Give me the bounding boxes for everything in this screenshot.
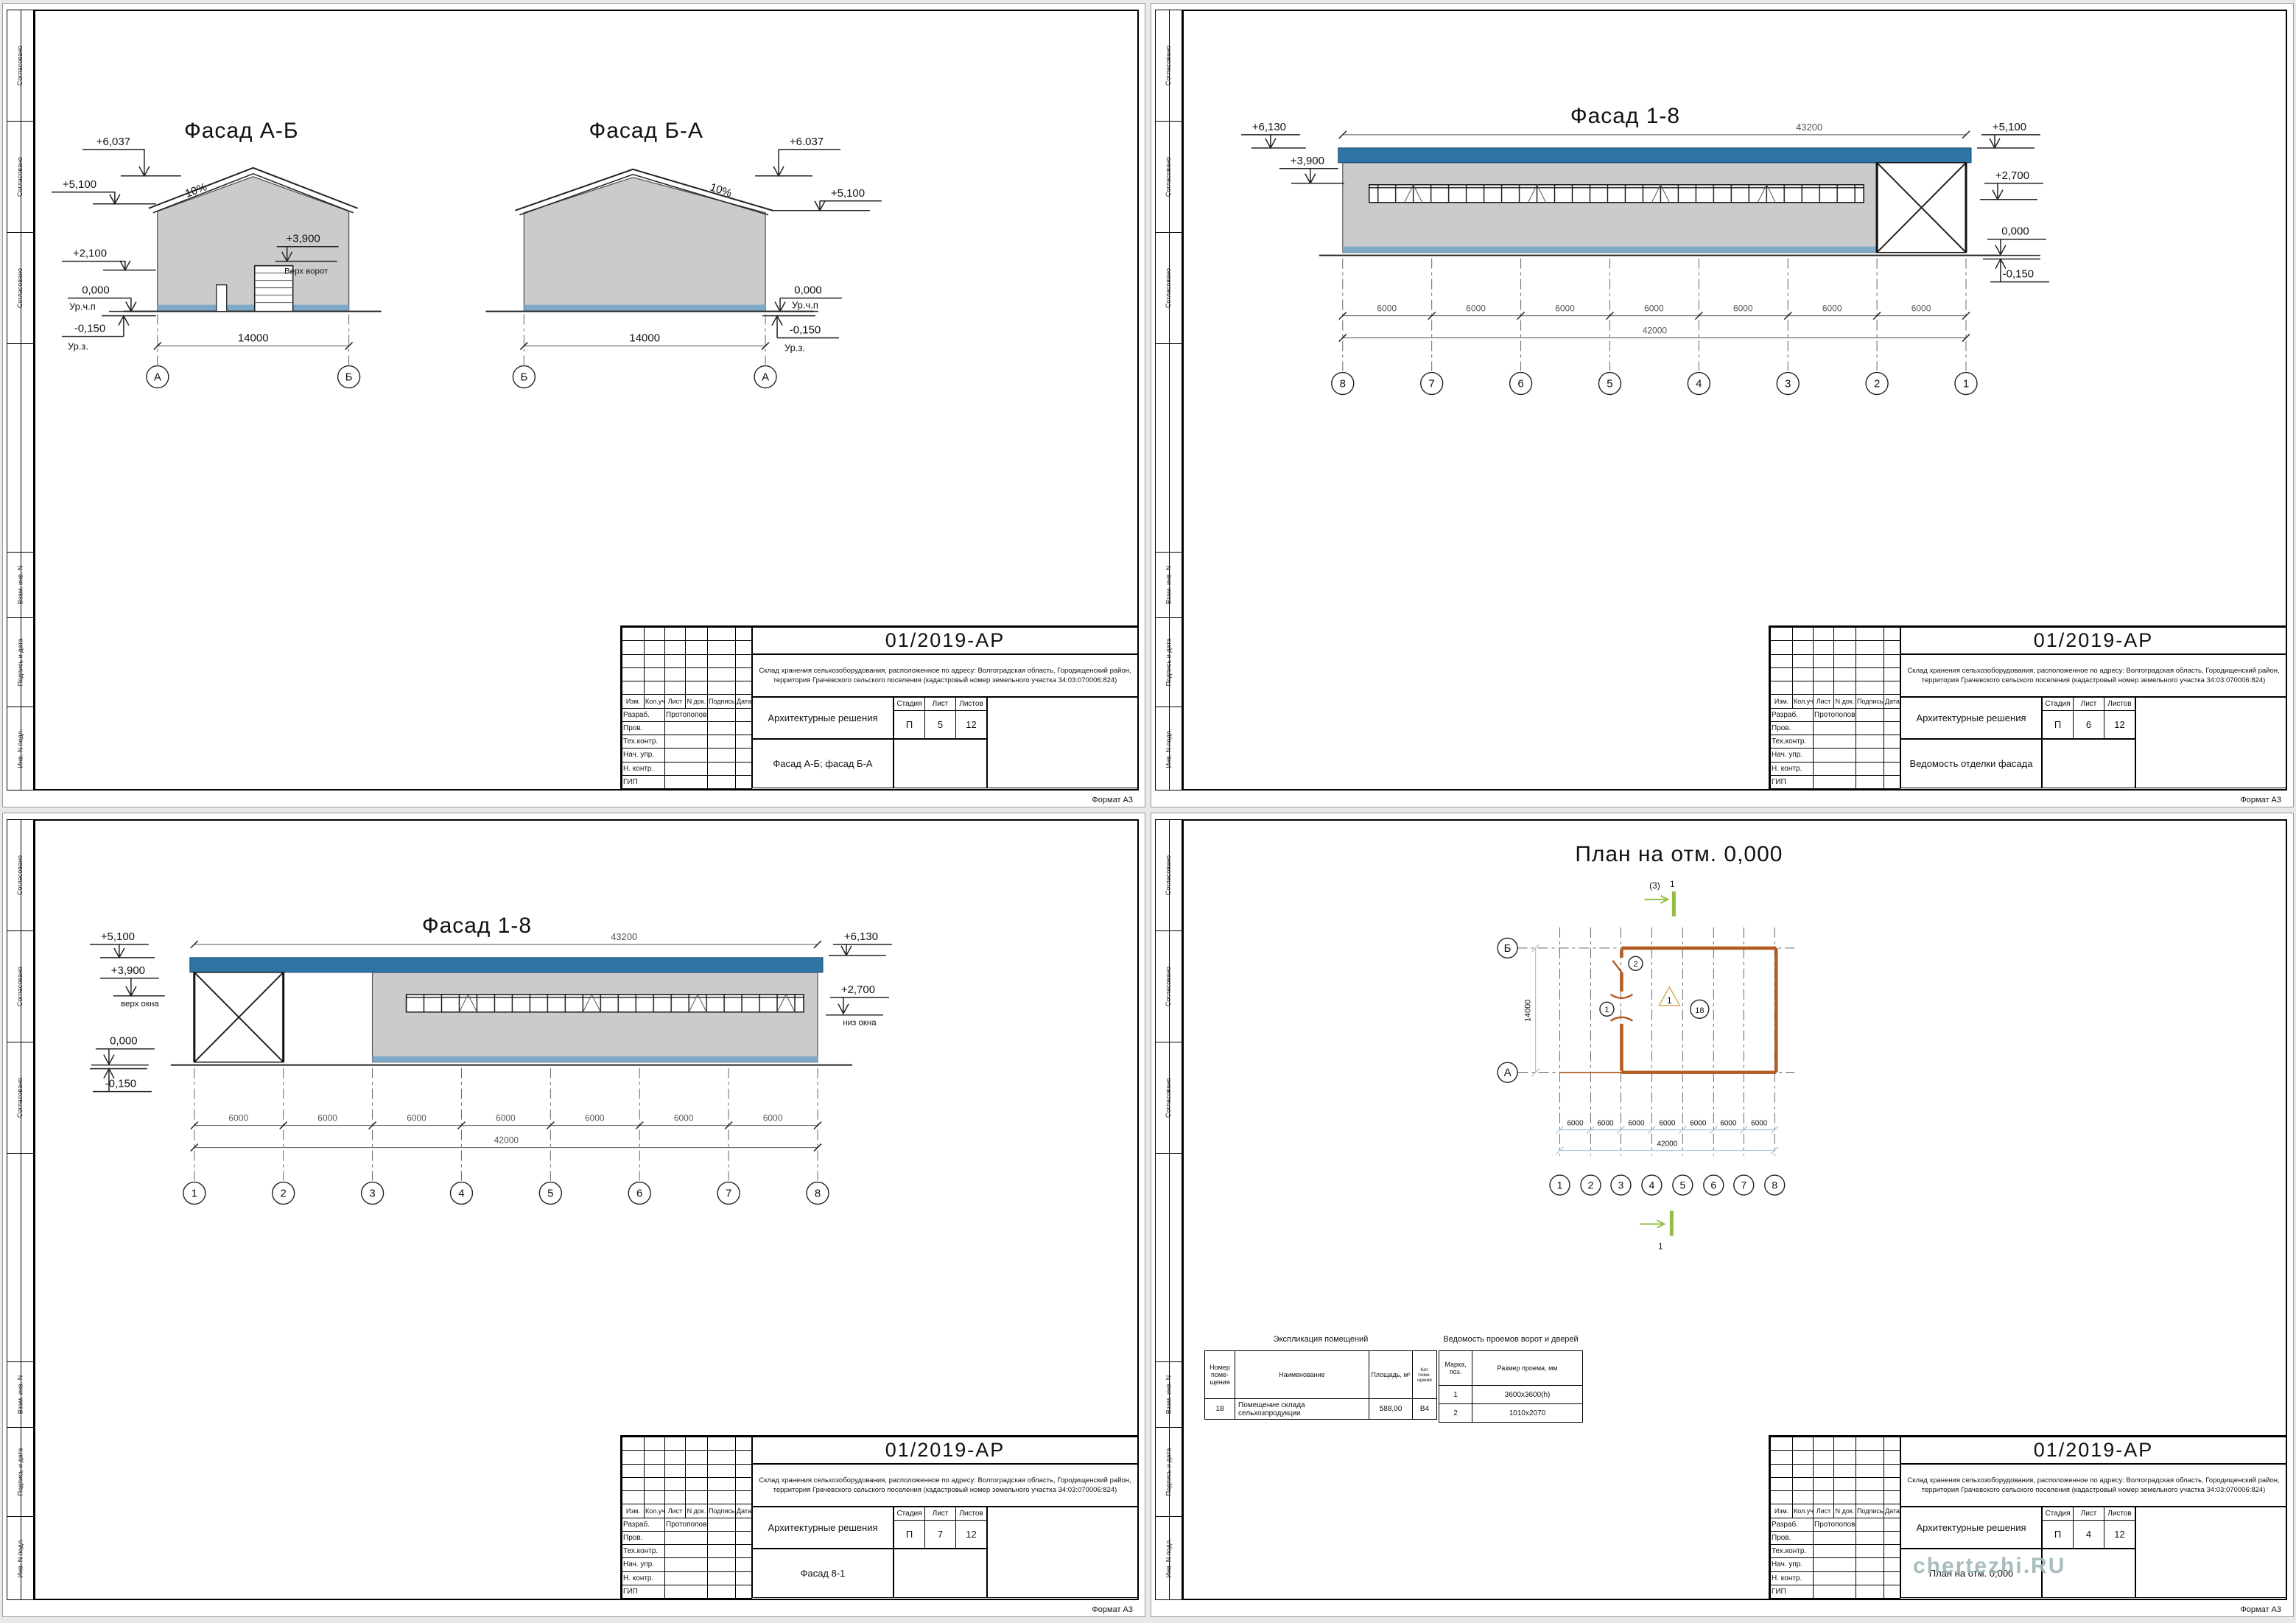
side-box: Согласовано xyxy=(7,930,34,1042)
svg-text:6000: 6000 xyxy=(1628,1120,1645,1128)
stage-sheet-counts: СтадияЛистЛистов П512 xyxy=(894,697,987,739)
svg-text:3: 3 xyxy=(1785,378,1791,390)
room-triangle-tag: 1 xyxy=(1659,987,1679,1006)
side-label: Согласовано xyxy=(1165,157,1173,197)
table-row: 18 Помещение склада сельхозпродукции 588… xyxy=(1205,1399,1437,1420)
svg-text:6000: 6000 xyxy=(1377,304,1397,314)
svg-text:+6,130: +6,130 xyxy=(844,930,878,943)
svg-text:6000: 6000 xyxy=(317,1113,337,1124)
svg-text:0,000: 0,000 xyxy=(794,284,821,297)
side-label: Согласовано xyxy=(17,855,24,895)
organization-cell xyxy=(2135,697,2286,788)
elevation-mark: +6,037 xyxy=(82,136,181,176)
svg-text:0,000: 0,000 xyxy=(110,1035,137,1048)
svg-text:А: А xyxy=(762,371,769,384)
side-label: Согласовано xyxy=(1165,1078,1173,1118)
svg-text:6000: 6000 xyxy=(1751,1120,1768,1128)
project-code: 01/2019-АР xyxy=(752,627,1138,654)
axis-extension-lines xyxy=(194,1068,818,1181)
side-box: Взам. инв. N xyxy=(1155,1361,1182,1427)
section-number-label: 1 xyxy=(1670,879,1675,889)
side-label: Согласовано xyxy=(1165,46,1173,85)
svg-text:6000: 6000 xyxy=(1720,1120,1737,1128)
svg-text:5: 5 xyxy=(1607,378,1612,390)
title-block: Изм.Кол.учЛистN док.ПодписьДата Разраб.П… xyxy=(620,625,1137,789)
svg-text:+5,100: +5,100 xyxy=(831,187,865,200)
svg-text:+2,700: +2,700 xyxy=(1995,169,2029,182)
svg-text:6000: 6000 xyxy=(1567,1120,1584,1128)
svg-text:2: 2 xyxy=(1874,378,1880,390)
svg-text:Ур.ч.п: Ур.ч.п xyxy=(792,300,818,311)
side-label: Подпись и дата xyxy=(1165,639,1173,687)
stage-sheet-counts: СтадияЛистЛистов П612 xyxy=(2042,697,2135,739)
wall xyxy=(1343,163,1877,253)
svg-text:7: 7 xyxy=(1429,378,1435,390)
section-number-label: 1 xyxy=(1658,1241,1663,1251)
elevation-mark: +5,100 xyxy=(771,187,882,211)
side-box: Инв. N подл. xyxy=(7,1516,34,1600)
svg-text:+6,130: +6,130 xyxy=(1252,121,1286,133)
plinth xyxy=(158,305,349,312)
format-label: Формат А3 xyxy=(2240,1605,2281,1614)
window-band xyxy=(407,995,804,1012)
side-box: Согласовано xyxy=(1155,819,1182,930)
svg-text:низ окна: низ окна xyxy=(843,1019,877,1028)
svg-text:1: 1 xyxy=(1667,995,1672,1006)
facade-elevation xyxy=(1319,148,2001,256)
discipline: Архитектурные решения xyxy=(1900,697,2042,739)
svg-text:6000: 6000 xyxy=(1555,304,1575,314)
format-label: Формат А3 xyxy=(1092,796,1133,805)
drawing-frame: Фасад 1-8 43200 xyxy=(1182,10,2287,791)
discipline: Архитектурные решения xyxy=(752,697,894,739)
elevation-mark: +5,100 xyxy=(52,178,156,204)
side-box: Согласовано xyxy=(7,819,34,930)
elevation-mark: -0,150 Ур.з. xyxy=(762,316,839,354)
svg-text:14000: 14000 xyxy=(629,332,660,345)
svg-text:верх окна: верх окна xyxy=(121,1000,159,1009)
section-ref-label: (3) xyxy=(1649,880,1660,891)
organization-cell xyxy=(2135,1507,2286,1598)
axis-bubbles: 8 7 6 5 4 3 2 1 xyxy=(1332,373,1977,395)
axis-bubbles-letters: Б А xyxy=(1498,938,1517,1082)
svg-text:8: 8 xyxy=(815,1188,821,1200)
svg-text:Б: Б xyxy=(1504,942,1512,955)
svg-text:7: 7 xyxy=(1741,1179,1746,1191)
openings-schedule: Ведомость проемов ворот и дверей Марка, … xyxy=(1439,1335,1583,1423)
bay-dimension-labels: 6000 6000 6000 6000 6000 6000 6000 42000 xyxy=(1567,1120,1767,1149)
side-box xyxy=(7,1153,34,1361)
elevation-mark: +3,900 xyxy=(1279,155,1344,183)
side-label: Инв. N подл. xyxy=(17,729,24,768)
side-box xyxy=(1155,1153,1182,1361)
plinth xyxy=(1343,247,1877,253)
room-schedule-title: Экспликация помещений xyxy=(1204,1335,1437,1344)
side-label: Взам. инв. N xyxy=(1165,1375,1173,1415)
side-box: Согласовано xyxy=(1155,232,1182,343)
elevation-mark: +2,100 xyxy=(62,248,156,270)
elevation-mark: +6,130 xyxy=(1241,121,1306,148)
facade-elevation xyxy=(171,958,852,1065)
vertical-dimension xyxy=(1532,944,1540,1076)
room-schedule: Экспликация помещений Номер поме-щения Н… xyxy=(1204,1335,1437,1420)
revision-table: Изм.Кол.учЛистN док.ПодписьДата Разраб.П… xyxy=(622,1437,752,1599)
svg-text:А: А xyxy=(1504,1067,1512,1079)
facade-ab: Фасад А-Б 10% +6,037 +5,100 xyxy=(52,119,382,388)
revision-table: Изм.Кол.учЛистN док.ПодписьДата Разраб.П… xyxy=(622,627,752,789)
side-label: Согласовано xyxy=(17,268,24,308)
project-description: Склад хранения сельхозоборудования, расп… xyxy=(752,654,1138,697)
svg-text:3: 3 xyxy=(369,1188,375,1200)
svg-text:4: 4 xyxy=(1696,378,1702,390)
svg-text:А: А xyxy=(154,371,161,384)
axis-bubbles-numbers: 1 2 3 4 5 6 7 8 xyxy=(1550,1175,1785,1195)
facade-title: Фасад 1-8 xyxy=(1570,104,1680,128)
side-box: Согласовано xyxy=(1155,10,1182,121)
side-box: Инв. N подл. xyxy=(1155,1516,1182,1600)
plan-title: План на отм. 0,000 xyxy=(1575,842,1783,866)
side-label: Инв. N подл. xyxy=(17,1539,24,1578)
svg-text:+6,037: +6,037 xyxy=(96,136,130,148)
elevation-mark: -0,150 xyxy=(1983,259,2049,282)
sheet-title: Фасад А-Б; фасад Б-А xyxy=(752,739,894,788)
organization-cell xyxy=(987,1507,1138,1598)
svg-text:Б: Б xyxy=(345,371,353,384)
svg-text:Верх ворот: Верх ворот xyxy=(284,267,329,276)
svg-text:Ур.з.: Ур.з. xyxy=(68,341,88,352)
axis-bubbles: Б А xyxy=(513,366,776,388)
organization-cell xyxy=(987,697,1138,788)
svg-text:6000: 6000 xyxy=(1733,304,1753,314)
svg-text:6000: 6000 xyxy=(674,1113,694,1124)
dimension-14000: 14000 xyxy=(520,315,769,365)
side-stamp-column: Согласовано Согласовано Согласовано Взам… xyxy=(7,10,34,791)
side-box: Взам. инв. N xyxy=(7,1361,34,1427)
revision-table: Изм.Кол.учЛистN док.ПодписьДата Разраб.П… xyxy=(1770,1437,1900,1599)
parapet-band xyxy=(190,958,823,972)
sheet-facade-8-1: Согласовано Согласовано Согласовано Взам… xyxy=(2,813,1145,1617)
elevation-mark: -0,150 Ур.з. xyxy=(62,316,156,352)
svg-text:6000: 6000 xyxy=(1911,304,1931,314)
elevation-mark: +2,700 xyxy=(1980,169,2043,200)
elevation-mark: 0,000 xyxy=(91,1035,155,1065)
facade-ba: Фасад Б-А 10% +6.037 +5,100 xyxy=(485,119,881,388)
svg-text:-0,150: -0,150 xyxy=(790,324,821,337)
svg-text:43200: 43200 xyxy=(611,931,637,942)
side-label: Подпись и дата xyxy=(1165,1448,1173,1496)
svg-text:+3,900: +3,900 xyxy=(111,964,145,977)
sheet-number: 7 xyxy=(925,1521,956,1548)
sheet-facade-1-8: Согласовано Согласовано Согласовано Взам… xyxy=(1151,3,2294,807)
dimension-14000: 14000 xyxy=(154,315,353,365)
door-leaf xyxy=(1612,961,1621,972)
discipline: Архитектурные решения xyxy=(752,1507,894,1549)
side-label: Подпись и дата xyxy=(17,1448,24,1496)
svg-text:1: 1 xyxy=(1963,378,1969,390)
door-leaf xyxy=(1610,995,1632,998)
window-band xyxy=(1369,185,1864,203)
svg-text:1: 1 xyxy=(1604,1006,1609,1014)
drawing-board: Согласовано Согласовано Согласовано Взам… xyxy=(0,0,2296,1617)
svg-text:1: 1 xyxy=(192,1188,197,1200)
svg-text:1: 1 xyxy=(1557,1179,1563,1191)
door-tag: 2 xyxy=(1629,956,1643,970)
svg-text:0,000: 0,000 xyxy=(2001,225,2029,238)
svg-text:6000: 6000 xyxy=(1690,1120,1707,1128)
section-mark-bottom xyxy=(1640,1210,1671,1235)
side-label: Подпись и дата xyxy=(17,639,24,687)
svg-text:4: 4 xyxy=(1649,1179,1655,1191)
project-code: 01/2019-АР xyxy=(1900,627,2286,654)
svg-text:Ур.ч.п: Ур.ч.п xyxy=(69,301,96,312)
sheet-number: 5 xyxy=(925,711,956,738)
svg-text:+2,100: +2,100 xyxy=(73,248,107,260)
svg-text:6000: 6000 xyxy=(407,1113,426,1124)
side-label: Согласовано xyxy=(1165,967,1173,1006)
format-label: Формат А3 xyxy=(1092,1605,1133,1614)
side-box: Согласовано xyxy=(1155,930,1182,1042)
side-label: Взам. инв. N xyxy=(1165,566,1173,605)
svg-text:14000: 14000 xyxy=(238,332,269,345)
side-stamp-column: Согласовано Согласовано Согласовано Взам… xyxy=(7,819,34,1600)
room-number-tag: 18 xyxy=(1691,1000,1709,1018)
svg-text:Б: Б xyxy=(520,371,527,384)
project-code: 01/2019-АР xyxy=(752,1437,1138,1464)
side-label: Согласовано xyxy=(17,967,24,1006)
svg-text:+3,900: +3,900 xyxy=(287,233,320,245)
elevation-mark: +5,100 xyxy=(1977,121,2040,148)
side-box: Взам. инв. N xyxy=(7,552,34,617)
table-row: 2 1010x2070 xyxy=(1439,1404,1583,1423)
elevation-mark: +6.037 xyxy=(755,136,840,176)
wall xyxy=(373,972,818,1062)
svg-text:6000: 6000 xyxy=(763,1113,783,1124)
facade-ba-title: Фасад Б-А xyxy=(589,119,703,143)
svg-text:5: 5 xyxy=(547,1188,553,1200)
side-stamp-column: Согласовано Согласовано Согласовано Взам… xyxy=(1155,819,1182,1600)
svg-text:6000: 6000 xyxy=(1597,1120,1614,1128)
svg-text:6000: 6000 xyxy=(585,1113,605,1124)
elevation-mark: 0,000 Ур.ч.п xyxy=(765,284,842,312)
side-box xyxy=(7,343,34,552)
elevation-mark: +2,700 низ окна xyxy=(826,984,889,1028)
svg-text:6000: 6000 xyxy=(496,1113,516,1124)
section-mark-top xyxy=(1644,891,1674,916)
elevation-mark: -0,150 xyxy=(90,1069,152,1092)
side-box: Взам. инв. N xyxy=(1155,552,1182,617)
svg-text:5: 5 xyxy=(1679,1179,1685,1191)
sheet-number: 6 xyxy=(2074,711,2104,738)
svg-text:7: 7 xyxy=(726,1188,731,1200)
elevation-mark: 0,000 Ур.ч.п xyxy=(68,284,156,312)
door-leaf xyxy=(1610,1017,1632,1021)
side-label: Взам. инв. N xyxy=(17,1375,24,1415)
project-description: Склад хранения сельхозоборудования, расп… xyxy=(1900,654,2286,697)
sheet-facades-ab-ba: Согласовано Согласовано Согласовано Взам… xyxy=(2,3,1145,807)
side-box: Согласовано xyxy=(1155,1042,1182,1153)
svg-text:Ур.з.: Ур.з. xyxy=(784,343,805,354)
stage-sheet-counts: СтадияЛистЛистов П712 xyxy=(894,1507,987,1549)
svg-text:18: 18 xyxy=(1695,1006,1704,1015)
svg-text:+5,100: +5,100 xyxy=(1993,121,2026,133)
project-description: Склад хранения сельхозоборудования, расп… xyxy=(752,1464,1138,1507)
svg-text:8: 8 xyxy=(1772,1179,1777,1191)
side-label: Согласовано xyxy=(17,1078,24,1118)
svg-text:3: 3 xyxy=(1618,1179,1624,1191)
svg-text:6000: 6000 xyxy=(1644,304,1664,314)
side-box: Подпись и дата xyxy=(7,617,34,707)
svg-text:43200: 43200 xyxy=(1796,122,1822,133)
side-label: Взам. инв. N xyxy=(17,566,24,605)
svg-text:6000: 6000 xyxy=(228,1113,248,1124)
slope-label: 10% xyxy=(709,181,734,200)
side-label: Инв. N подл. xyxy=(1165,729,1173,768)
elevation-mark: +3,900 верх окна xyxy=(100,964,165,1009)
elevation-mark: 0,000 xyxy=(1983,225,2046,256)
axis-extension-lines xyxy=(1343,259,1966,371)
svg-text:6: 6 xyxy=(1710,1179,1716,1191)
side-label: Согласовано xyxy=(17,46,24,85)
side-box: Подпись и дата xyxy=(1155,617,1182,707)
svg-text:-0,150: -0,150 xyxy=(2003,268,2034,281)
sheet-title: Ведомость отделки фасада xyxy=(1900,739,2042,788)
axis-bubbles: 1 2 3 4 5 6 7 8 xyxy=(183,1182,829,1205)
svg-text:6: 6 xyxy=(636,1188,642,1200)
table-row: 1 3600x3600(h) xyxy=(1439,1386,1583,1404)
side-box: Подпись и дата xyxy=(1155,1427,1182,1516)
side-box: Инв. N подл. xyxy=(1155,707,1182,791)
sheet-number: 4 xyxy=(2074,1521,2104,1548)
openings-schedule-title: Ведомость проемов ворот и дверей xyxy=(1439,1335,1583,1344)
side-box: Согласовано xyxy=(7,121,34,232)
svg-text:2: 2 xyxy=(281,1188,287,1200)
svg-text:6000: 6000 xyxy=(1466,304,1486,314)
side-box xyxy=(1155,343,1182,552)
side-label: Согласовано xyxy=(17,157,24,197)
svg-text:42000: 42000 xyxy=(1657,1140,1677,1149)
side-box: Подпись и дата xyxy=(7,1427,34,1516)
svg-text:+3,900: +3,900 xyxy=(1291,155,1324,167)
side-label: Согласовано xyxy=(1165,855,1173,895)
plinth xyxy=(524,305,765,312)
elevation-mark: +5,100 xyxy=(90,930,155,958)
side-box: Согласовано xyxy=(7,232,34,343)
svg-text:+6.037: +6.037 xyxy=(790,136,824,148)
svg-text:+2,700: +2,700 xyxy=(841,984,875,996)
side-label: Инв. N подл. xyxy=(1165,1539,1173,1578)
project-code: 01/2019-АР xyxy=(1900,1437,2286,1464)
dim-14000: 14000 xyxy=(1524,999,1533,1022)
drawing-frame: План на отм. 0,000 (3) 1 xyxy=(1182,819,2287,1600)
bay-dimensions: 6000 6000 6000 6000 6000 6000 6000 42000 xyxy=(1339,304,1970,342)
watermark: chertezhi.RU xyxy=(1913,1554,2065,1579)
side-box: Согласовано xyxy=(7,10,34,121)
svg-text:-0,150: -0,150 xyxy=(105,1078,136,1090)
door-tag: 1 xyxy=(1600,1002,1614,1016)
parapet-band xyxy=(1338,148,1971,163)
drawing-frame: Фасад 1-8 43200 xyxy=(34,819,1139,1600)
svg-text:2: 2 xyxy=(1588,1179,1594,1191)
format-label: Формат А3 xyxy=(2240,796,2281,805)
bay-dimensions: 6000 6000 6000 6000 6000 6000 6000 42000 xyxy=(191,1113,821,1151)
revision-table: Изм.Кол.учЛистN док.ПодписьДата Разраб.П… xyxy=(1770,627,1900,789)
side-label: Согласовано xyxy=(1165,268,1173,308)
svg-text:0,000: 0,000 xyxy=(82,284,109,297)
axis-bubbles: А Б xyxy=(147,366,360,388)
elevation-mark: +6,130 xyxy=(829,930,892,956)
svg-text:6: 6 xyxy=(1517,378,1523,390)
svg-text:4: 4 xyxy=(458,1188,464,1200)
svg-text:+5,100: +5,100 xyxy=(101,930,135,943)
title-block: Изм.Кол.учЛистN док.ПодписьДата Разраб.П… xyxy=(1769,625,2286,789)
side-stamp-column: Согласовано Согласовано Согласовано Взам… xyxy=(1155,10,1182,791)
svg-text:+5,100: +5,100 xyxy=(63,178,96,191)
svg-text:6000: 6000 xyxy=(1659,1120,1676,1128)
sheet-title: Фасад 8-1 xyxy=(752,1549,894,1598)
sheet-plan-0000: Согласовано Согласовано Согласовано Взам… xyxy=(1151,813,2294,1617)
stage-sheet-counts: СтадияЛистЛистов П412 xyxy=(2042,1507,2135,1549)
side-box: Инв. N подл. xyxy=(7,707,34,791)
facade-title: Фасад 1-8 xyxy=(422,914,532,938)
discipline: Архитектурные решения xyxy=(1900,1507,2042,1549)
project-description: Склад хранения сельхозоборудования, расп… xyxy=(1900,1464,2286,1507)
svg-text:6000: 6000 xyxy=(1822,304,1842,314)
side-box: Согласовано xyxy=(7,1042,34,1153)
title-block: Изм.Кол.учЛистN док.ПодписьДата Разраб.П… xyxy=(620,1435,1137,1599)
svg-text:2: 2 xyxy=(1633,960,1637,969)
side-box: Согласовано xyxy=(1155,121,1182,232)
svg-text:42000: 42000 xyxy=(1643,326,1668,336)
facade-ab-title: Фасад А-Б xyxy=(184,119,299,143)
svg-text:42000: 42000 xyxy=(494,1135,519,1146)
plinth xyxy=(373,1056,818,1062)
door xyxy=(217,285,227,312)
svg-text:8: 8 xyxy=(1340,378,1346,390)
svg-text:-0,150: -0,150 xyxy=(74,323,105,335)
drawing-frame: Фасад А-Б 10% +6,037 +5,100 xyxy=(34,10,1139,791)
